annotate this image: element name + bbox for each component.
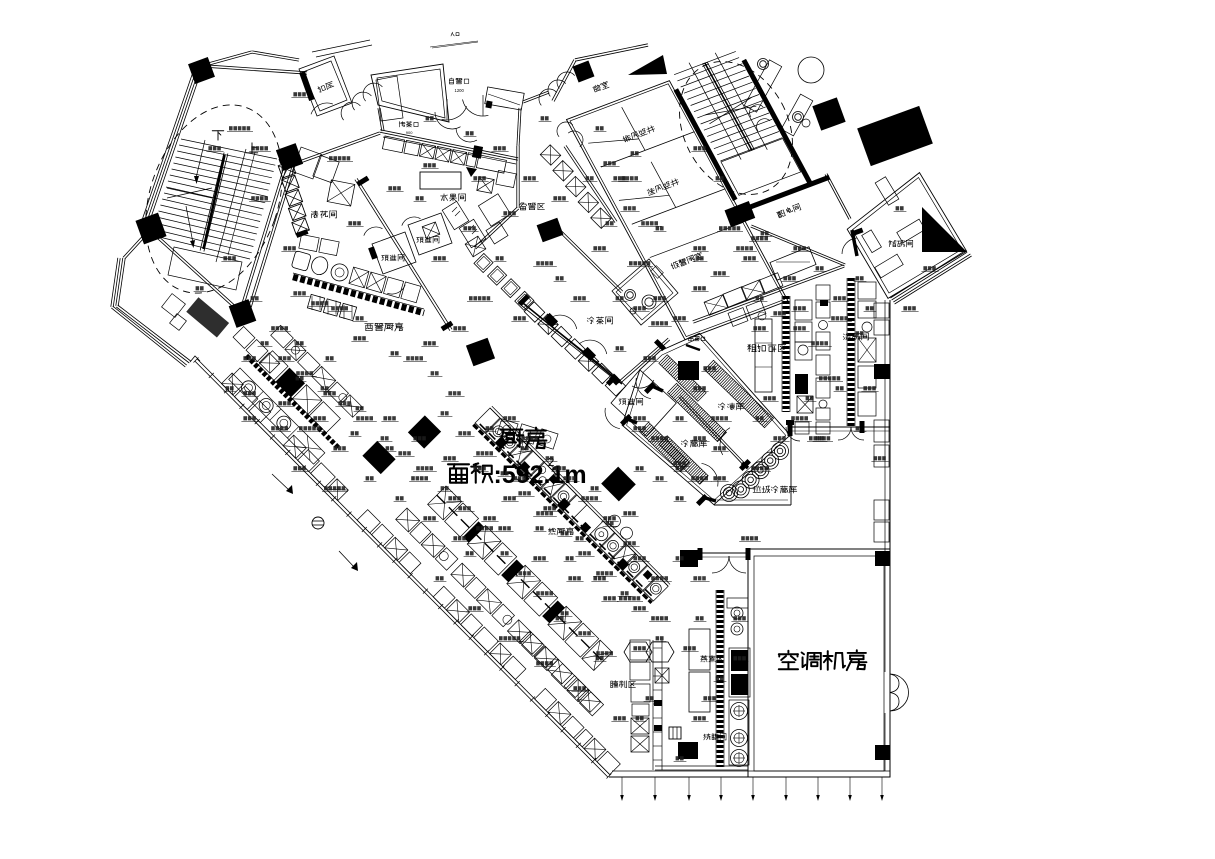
svg-text:1200: 1200 [455,88,465,93]
svg-text:900: 900 [406,130,413,135]
